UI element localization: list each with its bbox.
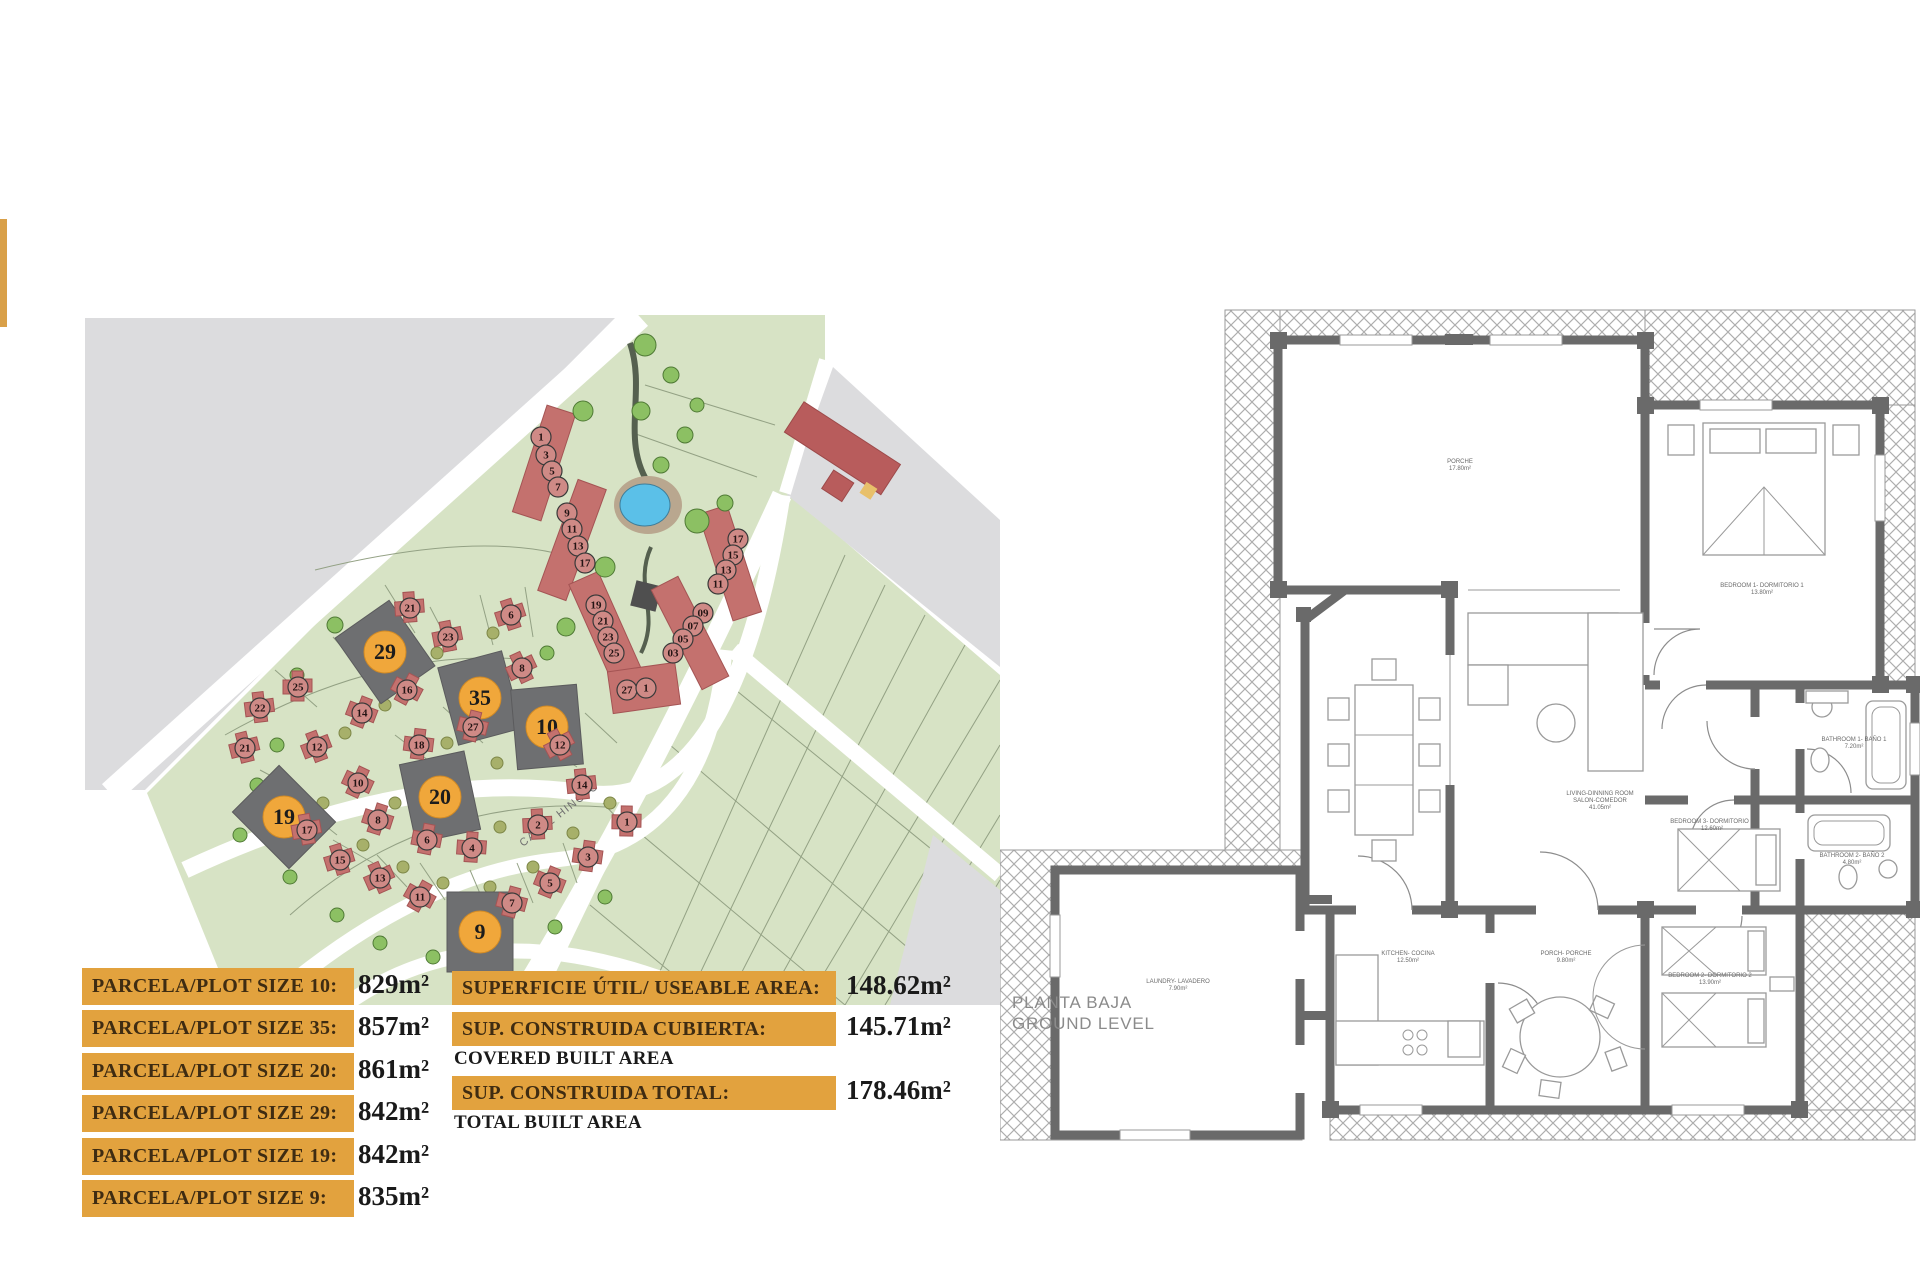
house-number-text: 15 <box>335 855 347 867</box>
area-info-sublabel: TOTAL BUILT AREA <box>454 1112 642 1134</box>
house-number-text: 12 <box>555 740 567 752</box>
house-number-text: 8 <box>375 815 381 827</box>
house-marker-11[interactable]: 11 <box>708 574 728 594</box>
house-number-text: 11 <box>415 892 425 904</box>
house-number-text: 14 <box>577 780 589 792</box>
area-info-label: SUPERFICIE ÚTIL/ USEABLE AREA: <box>452 977 830 1000</box>
house-number-text: 2 <box>535 820 541 832</box>
house-number-text: 16 <box>402 685 414 697</box>
plot-size-label: PARCELA/PLOT SIZE 29: <box>82 1102 347 1125</box>
brochure-page: CALLE HINOJO 293510201991357911131717151… <box>0 0 1920 1280</box>
house-number-text: 27 <box>622 685 634 697</box>
plot-number-text: 35 <box>469 685 491 710</box>
plot-size-label: PARCELA/PLOT SIZE 9: <box>82 1187 337 1210</box>
area-info-row: SUPERFICIE ÚTIL/ USEABLE AREA: 148.62m² <box>452 971 972 1008</box>
house-number-text: 1 <box>643 683 649 695</box>
highlighted-plot-10[interactable]: 10 <box>511 684 584 769</box>
house-number-text: 8 <box>519 663 525 675</box>
house-number-text: 7 <box>555 482 561 494</box>
area-info-row: SUP. CONSTRUIDA CUBIERTA: 145.71m² COVER… <box>452 1012 972 1049</box>
house-marker-25[interactable]: 25 <box>604 643 624 663</box>
area-info-value: 148.62m² <box>846 970 951 1001</box>
house-marker-1[interactable]: 1 <box>531 427 551 447</box>
house-number-text: 23 <box>603 632 615 644</box>
plot-size-value: 835m² <box>358 1181 429 1212</box>
house-number-text: 13 <box>573 541 585 553</box>
house-number-text: 10 <box>353 778 365 790</box>
house-number-text: 25 <box>293 682 305 694</box>
plot-size-row: PARCELA/PLOT SIZE 9: 835m² <box>82 1180 542 1217</box>
house-number-text: 5 <box>549 466 555 478</box>
house-marker-03[interactable]: 03 <box>663 643 683 663</box>
plot-size-label: PARCELA/PLOT SIZE 19: <box>82 1145 347 1168</box>
house-number-text: 6 <box>508 610 514 622</box>
house-marker-7[interactable]: 7 <box>548 477 568 497</box>
house-number-text: 3 <box>585 852 591 864</box>
house-number-text: 21 <box>598 616 609 628</box>
left-accent-bar <box>0 219 7 327</box>
house-number-text: 05 <box>678 634 690 646</box>
site-plan-map[interactable]: CALLE HINOJO 293510201991357911131717151… <box>85 315 1000 1005</box>
room-label: PORCHE17.80m² <box>1447 459 1473 472</box>
house-number-text: 11 <box>567 524 577 536</box>
house-number-text: 25 <box>609 648 621 660</box>
house-number-text: 14 <box>357 708 369 720</box>
house-number-text: 5 <box>547 878 553 890</box>
plot-size-value: 861m² <box>358 1054 429 1085</box>
area-info-sublabel: COVERED BUILT AREA <box>454 1048 674 1070</box>
house-number-text: 7 <box>509 898 515 910</box>
house-number-text: 17 <box>302 825 314 837</box>
house-number-text: 19 <box>591 600 603 612</box>
plot-size-row: PARCELA/PLOT SIZE 19: 842m² <box>82 1138 542 1175</box>
house-number-text: 1 <box>538 432 544 444</box>
area-info-label: SUP. CONSTRUIDA TOTAL: <box>452 1082 740 1105</box>
area-info-row: SUP. CONSTRUIDA TOTAL: 178.46m² TOTAL BU… <box>452 1076 972 1113</box>
house-number-text: 3 <box>543 450 549 462</box>
house-marker-1[interactable]: 1 <box>636 678 656 698</box>
house-number-text: 1 <box>624 817 630 829</box>
plot-number-text: 9 <box>475 919 486 944</box>
swimming-pool <box>620 484 670 526</box>
caption-line-planta: PLANTA BAJA <box>1012 992 1155 1013</box>
plot-size-value: 842m² <box>358 1139 429 1170</box>
plot-size-label: PARCELA/PLOT SIZE 10: <box>82 975 347 998</box>
house-number-text: 13 <box>375 873 387 885</box>
house-number-text: 9 <box>564 508 570 520</box>
house-number-text: 27 <box>468 722 480 734</box>
house-number-text: 11 <box>713 579 723 591</box>
house-number-text: 23 <box>443 632 455 644</box>
house-number-text: 6 <box>424 835 430 847</box>
floor-plan-caption: PLANTA BAJA GROUND LEVEL <box>1012 992 1155 1034</box>
house-number-text: 22 <box>255 703 267 715</box>
house-number-text: 21 <box>405 603 416 615</box>
house-number-text: 18 <box>414 740 426 752</box>
house-number-text: 4 <box>469 843 475 855</box>
area-info-label: SUP. CONSTRUIDA CUBIERTA: <box>452 1018 776 1041</box>
plot-size-label: PARCELA/PLOT SIZE 20: <box>82 1060 347 1083</box>
house-number-text: 17 <box>733 534 745 546</box>
house-marker-17[interactable]: 17 <box>575 553 595 573</box>
house-number-text: 15 <box>728 550 740 562</box>
house-number-text: 03 <box>668 648 680 660</box>
plot-size-value: 857m² <box>358 1011 429 1042</box>
house-number-text: 17 <box>580 558 592 570</box>
plot-number-text: 20 <box>429 784 451 809</box>
area-info-value: 178.46m² <box>846 1075 951 1106</box>
plot-size-value: 829m² <box>358 969 429 1000</box>
house-marker-27[interactable]: 27 <box>617 680 637 700</box>
house-number-text: 21 <box>240 743 251 755</box>
plot-size-value: 842m² <box>358 1096 429 1127</box>
plot-size-label: PARCELA/PLOT SIZE 35: <box>82 1017 347 1040</box>
house-number-text: 12 <box>312 742 324 754</box>
caption-line-ground: GROUND LEVEL <box>1012 1013 1155 1034</box>
area-info-value: 145.71m² <box>846 1011 951 1042</box>
plot-number-text: 29 <box>374 639 396 664</box>
